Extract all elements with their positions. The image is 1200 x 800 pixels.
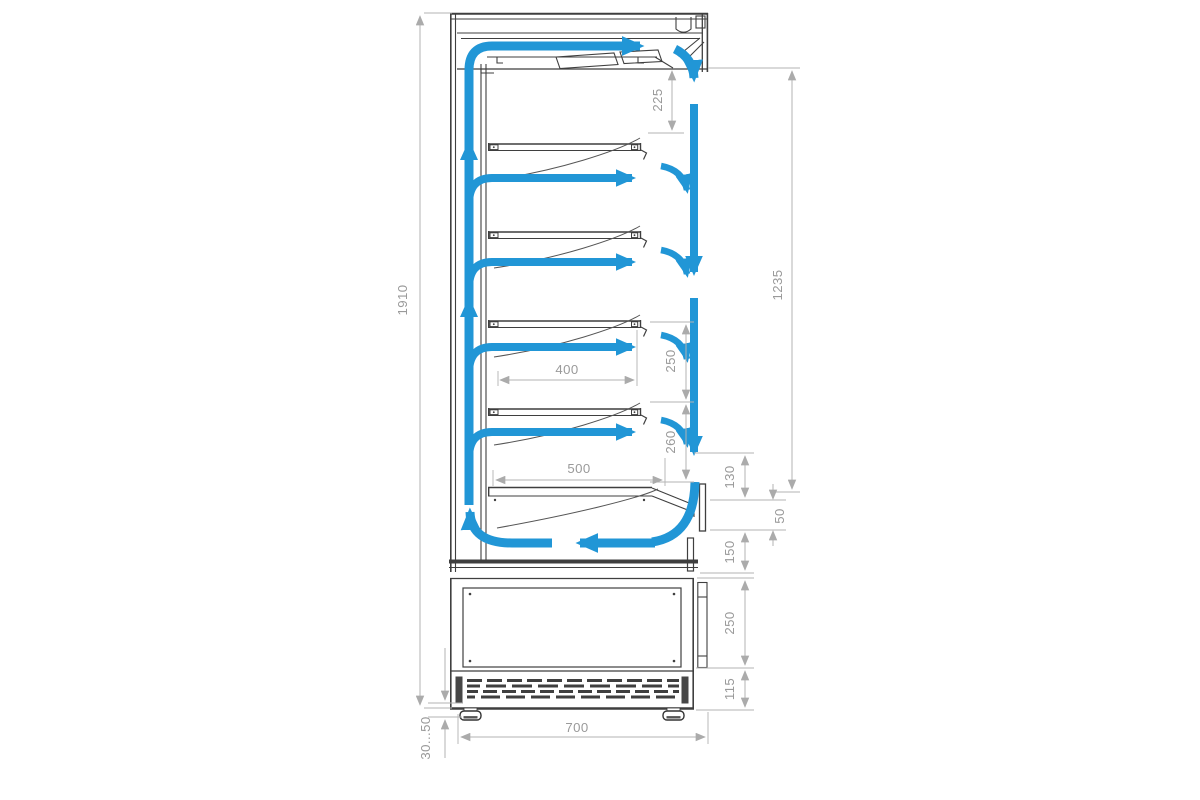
foot-right	[663, 708, 684, 720]
side-flap	[698, 582, 707, 668]
dim-front-upper-label: 130	[722, 465, 737, 488]
airflow-up-arrowhead	[460, 297, 478, 317]
shelf-3	[488, 320, 647, 337]
bottom-deck	[488, 487, 694, 528]
technical-drawing-canvas: 1910 225 1235 250 260 130 50 150 250 115…	[0, 0, 1200, 800]
shelf-1	[488, 143, 647, 160]
dim-grille-height-label: 115	[722, 678, 737, 700]
base-front-panel	[463, 588, 681, 667]
airflow-shelf-4	[469, 432, 632, 458]
airflow-curtain-top	[675, 49, 694, 78]
dim-front-lower-label: 150	[722, 540, 737, 563]
display-bottom	[449, 562, 698, 568]
machine-compartment	[450, 578, 707, 720]
shelf-2	[488, 231, 647, 248]
airflow-back-duct	[469, 46, 640, 505]
airflow-return-up	[470, 512, 552, 543]
cabinet-cross-section-drawing: 1910 225 1235 250 260 130 50 150 250 115…	[0, 0, 1200, 800]
shelves	[488, 138, 647, 445]
ventilation-grille	[456, 677, 689, 704]
dim-intake-gap-label: 50	[772, 508, 787, 523]
airflow-shelf-3	[469, 347, 632, 373]
dim-base-height-label: 250	[722, 611, 737, 634]
dim-overall-height-label: 1910	[395, 285, 410, 316]
dim-shelf-depth-label: 400	[555, 362, 578, 377]
front-canopy	[655, 13, 707, 72]
evaporator-tray	[556, 50, 662, 69]
shelf-4	[488, 408, 647, 425]
dim-shelf-pitch-label: 250	[663, 349, 678, 372]
airflow-shelf-1	[469, 178, 632, 204]
airflow-shelf-2	[469, 262, 632, 288]
dim-top-section-label: 225	[650, 88, 665, 111]
dim-bottom-pitch-label: 260	[663, 430, 678, 453]
dim-air-curtain-label: 1235	[770, 270, 785, 301]
foot-left	[460, 708, 481, 720]
dim-bottom-shelf-depth-label: 500	[567, 461, 590, 476]
extension-lines	[424, 13, 800, 744]
dim-foot-height-label: 30...50	[418, 716, 433, 759]
airflow-up-arrowhead	[460, 140, 478, 160]
dimension-lines	[420, 16, 792, 758]
dim-depth-label: 700	[565, 720, 588, 735]
